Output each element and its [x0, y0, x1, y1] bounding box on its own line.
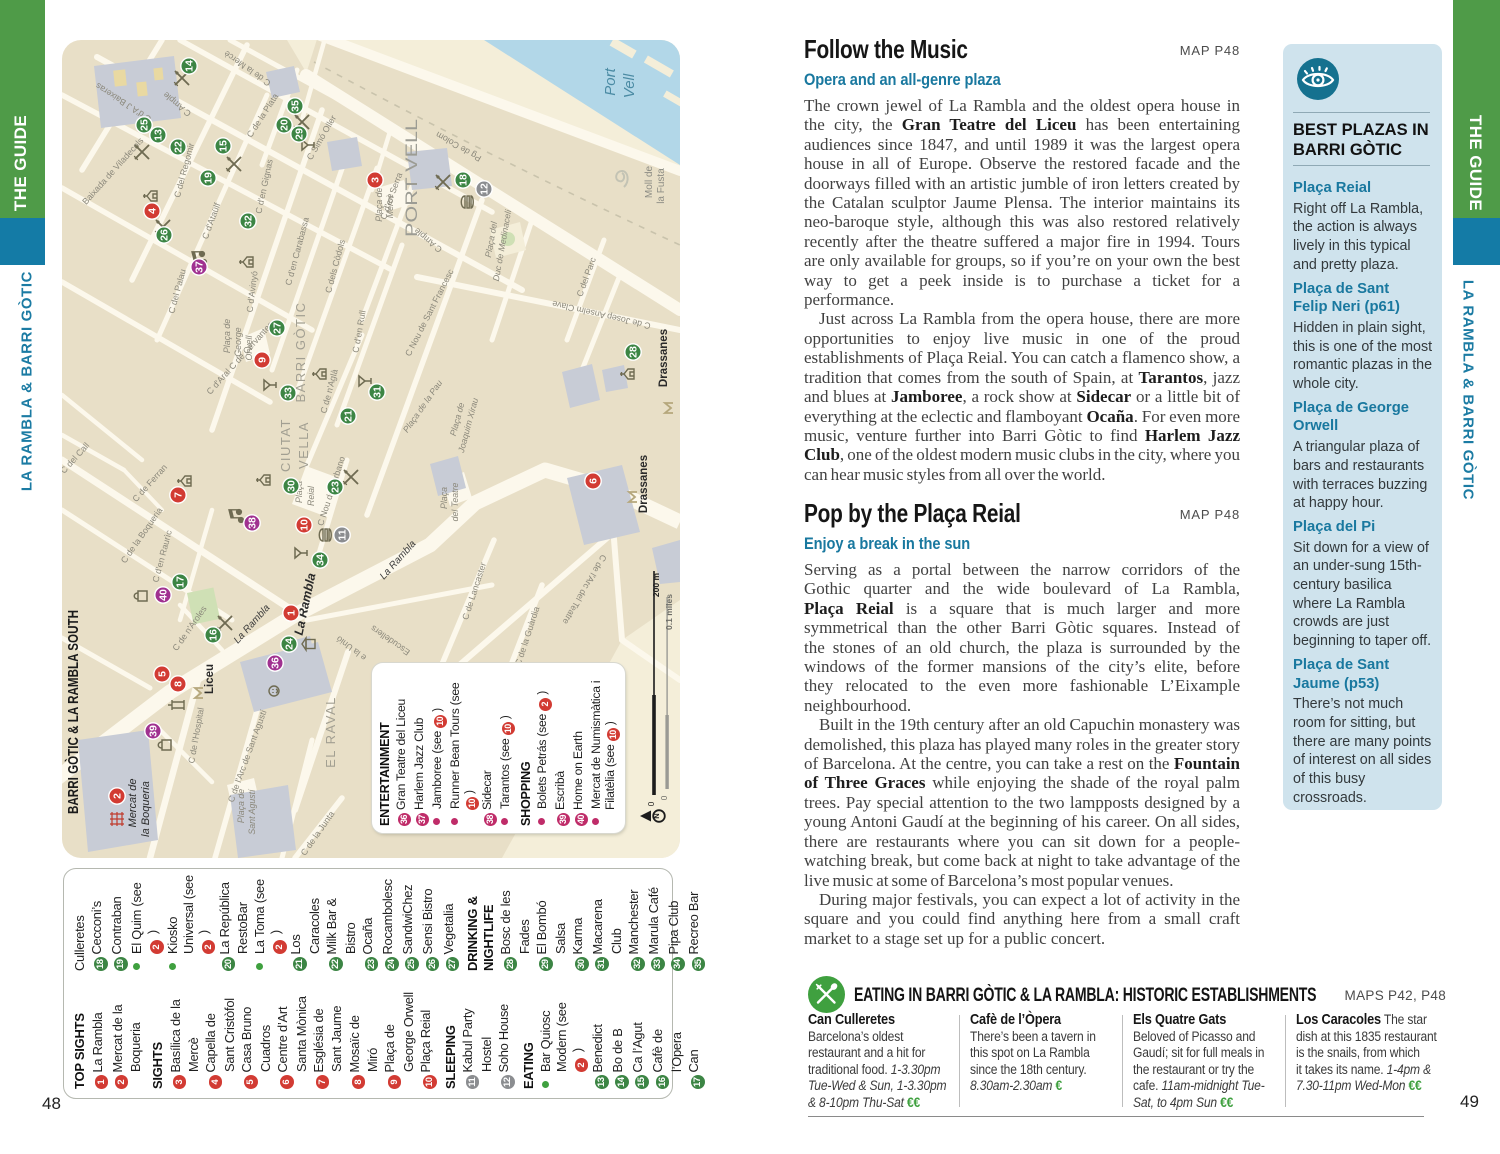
svg-text:BARRI GÒTIC: BARRI GÒTIC — [293, 301, 308, 402]
svg-text:8: 8 — [173, 681, 185, 687]
svg-text:Vell: Vell — [621, 73, 638, 98]
svg-text:N: N — [652, 813, 661, 818]
svg-text:31: 31 — [372, 386, 384, 398]
svg-text:6: 6 — [588, 478, 600, 484]
svg-text:Reial: Reial — [306, 485, 316, 506]
svg-text:34: 34 — [315, 554, 327, 566]
svg-text:Drassanes: Drassanes — [658, 329, 670, 387]
svg-text:40: 40 — [158, 589, 170, 601]
svg-text:Port: Port — [602, 67, 619, 95]
svg-text:BARRI GÒTIC & LA RAMBLA SOUTH: BARRI GÒTIC & LA RAMBLA SOUTH — [64, 610, 82, 814]
svg-text:VELLA: VELLA — [296, 421, 311, 469]
svg-text:7: 7 — [173, 492, 185, 498]
svg-text:Moll de: Moll de — [644, 165, 655, 198]
svg-text:2: 2 — [112, 793, 124, 799]
svg-text:32: 32 — [243, 215, 255, 227]
svg-text:12: 12 — [479, 183, 491, 195]
svg-text:0.1 miles: 0.1 miles — [664, 594, 674, 630]
svg-text:Plaça de: Plaça de — [236, 789, 246, 823]
svg-text:10: 10 — [299, 519, 311, 531]
svg-text:PORT VELL: PORT VELL — [403, 119, 421, 237]
svg-text:24: 24 — [284, 638, 296, 650]
svg-text:George: George — [233, 327, 243, 356]
svg-text:0: 0 — [659, 795, 669, 800]
svg-text:29: 29 — [294, 128, 306, 140]
svg-text:38: 38 — [247, 517, 259, 529]
svg-text:Sant Agustí: Sant Agustí — [247, 788, 257, 835]
svg-text:5: 5 — [157, 671, 169, 677]
svg-text:35: 35 — [290, 100, 302, 112]
svg-text:20: 20 — [279, 119, 291, 131]
svg-text:39: 39 — [148, 725, 160, 737]
svg-text:Drassanes: Drassanes — [638, 455, 650, 513]
svg-text:22: 22 — [173, 141, 185, 153]
svg-text:16: 16 — [208, 629, 220, 641]
svg-text:25: 25 — [139, 119, 151, 131]
svg-text:CIUTAT: CIUTAT — [278, 418, 293, 472]
svg-text:0: 0 — [646, 801, 656, 806]
svg-text:19: 19 — [203, 172, 215, 184]
svg-text:3: 3 — [370, 177, 382, 183]
svg-text:Mercat de: Mercat de — [127, 779, 139, 828]
svg-text:la Boqueria: la Boqueria — [140, 781, 152, 837]
svg-text:13: 13 — [153, 129, 165, 141]
svg-text:Plaça de: Plaça de — [222, 319, 232, 353]
svg-text:4: 4 — [147, 208, 159, 214]
svg-text:Mercè: Mercè — [385, 194, 395, 219]
svg-text:1: 1 — [286, 610, 298, 616]
svg-text:30: 30 — [286, 480, 298, 492]
svg-text:17: 17 — [175, 576, 187, 588]
svg-text:21: 21 — [343, 410, 355, 422]
svg-text:23: 23 — [330, 481, 342, 493]
svg-text:37: 37 — [194, 261, 206, 273]
svg-text:Orwell: Orwell — [244, 334, 254, 360]
svg-text:200 m: 200 m — [651, 573, 661, 598]
svg-text:del Teatre: del Teatre — [450, 482, 460, 521]
svg-text:EL RAVAL: EL RAVAL — [323, 696, 338, 768]
svg-text:33: 33 — [283, 387, 295, 399]
svg-text:Liceu: Liceu — [204, 664, 216, 694]
svg-text:la Fusta: la Fusta — [656, 168, 667, 204]
svg-text:11: 11 — [337, 529, 349, 540]
svg-text:18: 18 — [458, 174, 470, 186]
svg-text:14: 14 — [184, 60, 196, 72]
svg-text:26: 26 — [159, 229, 171, 241]
svg-text:9: 9 — [257, 357, 269, 363]
svg-text:28: 28 — [628, 346, 640, 358]
svg-text:27: 27 — [272, 322, 284, 334]
svg-text:36: 36 — [270, 657, 282, 669]
svg-text:Plaça: Plaça — [439, 487, 449, 509]
svg-text:15: 15 — [218, 140, 230, 152]
